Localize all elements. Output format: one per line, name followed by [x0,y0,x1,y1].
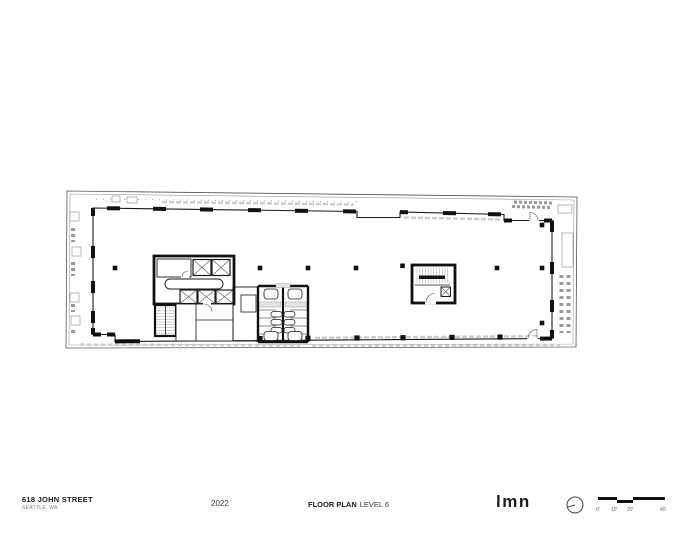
sheet-year: 2022 [211,499,229,508]
floor-plan-drawing [0,0,700,540]
scale-label-40: 40' [660,507,667,513]
sheet-title: FLOOR PLANLEVEL 6 [308,500,389,509]
firm-logo: LMN [496,492,531,512]
scale-label-0: 0' [596,507,600,513]
drawing-sheet: 618 JOHN STREET SEATTLE, WA 2022 FLOOR P… [0,0,700,540]
elevator-core [154,256,258,341]
sheet-title-label: FLOOR PLAN [308,500,357,509]
stair-core-east [412,265,455,304]
scale-label-20: 20' [627,507,634,513]
restroom-core [258,284,308,343]
project-name: 618 JOHN STREET [22,495,93,504]
scale-bar-segment [617,500,633,503]
scale-bar-segment [633,497,665,500]
scale-bar-segment [598,497,617,500]
north-arrow-icon [565,495,585,515]
scale-label-10: 10' [611,507,618,513]
sheet-title-level: LEVEL 6 [360,500,389,509]
stair-west [155,305,176,336]
door-swing-icons [527,213,539,341]
scale-bar: 0' 10' 20' 40' [596,494,676,516]
project-location: SEATTLE, WA [22,505,58,511]
